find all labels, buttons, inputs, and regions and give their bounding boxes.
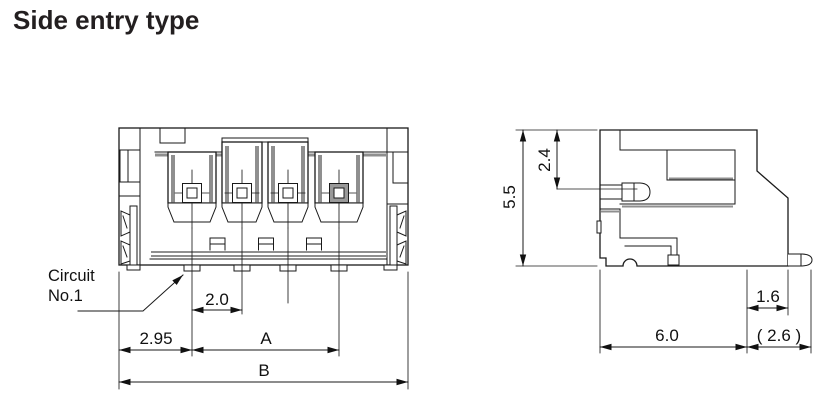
technical-drawing: 2.0 2.95 A B Circuit No.1 [0, 0, 829, 402]
dim-pin-offset-value: 2.4 [535, 148, 554, 172]
drawing-sheet: Side entry type [0, 0, 829, 402]
dim-overall-b: B [119, 361, 408, 382]
dim-lead: 1.6 [747, 287, 788, 308]
dim-depth-value: 6.0 [655, 326, 679, 345]
dim-height-value: 5.5 [500, 185, 519, 209]
circuit-no1-label: Circuit No.1 [48, 267, 183, 311]
dim-height: 5.5 [500, 130, 523, 266]
dim-b-value: B [258, 361, 269, 380]
dim-depth: 6.0 [600, 326, 747, 347]
dim-overhang: ( 2.6 ) [747, 326, 811, 347]
side-view [597, 130, 812, 266]
dim-edge-to-pin1: 2.95 [119, 329, 192, 350]
dim-lead-value: 1.6 [756, 287, 780, 306]
front-dimensions: 2.0 2.95 A B Circuit No.1 [48, 267, 408, 389]
circuit-label-line2: No.1 [48, 287, 83, 305]
dim-pitch-value: 2.0 [205, 290, 229, 309]
solder-tabs [127, 265, 397, 271]
circuit-label-line1: Circuit [48, 267, 95, 285]
dim-pitch: 2.0 [192, 290, 242, 310]
dim-span-a: A [192, 329, 339, 350]
dim-a-value: A [260, 329, 272, 348]
dim-edge-value: 2.95 [139, 329, 172, 348]
pcb-lead [788, 254, 812, 266]
dim-overhang-value: ( 2.6 ) [757, 326, 801, 345]
front-view [119, 128, 408, 356]
